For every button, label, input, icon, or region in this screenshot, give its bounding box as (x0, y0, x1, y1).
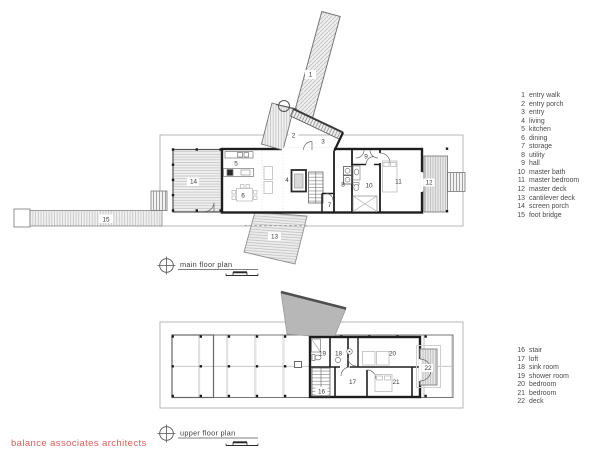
legend-item: 12master deck (512, 186, 579, 195)
legend-item: 19shower room (512, 373, 569, 382)
legend-item-number: 8 (512, 152, 525, 161)
legend-item-label: master bedroom (529, 177, 579, 186)
legend-main: 1entry walk 2entry porch 3entry 4living … (512, 92, 579, 220)
firm-name: balance associates architects (11, 438, 147, 449)
scale-bar (226, 442, 258, 445)
north-arrow-icon (158, 257, 176, 275)
legend-item-label: dining (529, 135, 547, 144)
legend-item-label: sink room (529, 364, 559, 373)
room-label-8: 8 (341, 182, 345, 189)
room-label-18: 18 (335, 350, 343, 357)
fireplace (292, 170, 307, 192)
legend-item-number: 21 (512, 390, 525, 399)
room-label-5: 5 (234, 161, 238, 168)
legend-item-label: master deck (529, 186, 567, 195)
legend-item: 4living (512, 118, 579, 127)
room-label-9: 9 (364, 154, 368, 161)
legend-item-number: 14 (512, 203, 525, 212)
stove (227, 170, 233, 176)
legend-item-label: cantilever deck (529, 195, 575, 204)
room-label-21: 21 (392, 379, 400, 386)
legend-item-label: storage (529, 143, 552, 152)
legend-item: 6dining (512, 135, 579, 144)
room-label-6: 6 (241, 193, 245, 200)
floor-plan-drawing: 1 2 3 4 5 6 7 8 9 10 11 12 13 14 15 main… (0, 0, 600, 464)
room-label-12: 12 (425, 180, 433, 187)
entry-roof-panel (281, 292, 346, 338)
room-label-16: 16 (318, 389, 326, 396)
legend-item-label: bedroom (529, 381, 556, 390)
entry-opening (282, 148, 334, 151)
room-label-13: 13 (271, 234, 279, 241)
legend-item-label: hall (529, 160, 540, 169)
room-label-3: 3 (321, 139, 325, 146)
legend-item-number: 11 (512, 177, 525, 186)
legend-item-label: loft (529, 356, 538, 365)
legend-item-number: 16 (512, 347, 525, 356)
legend-item-number: 17 (512, 356, 525, 365)
north-arrow-icon (158, 425, 176, 443)
legend-item-label: entry porch (529, 101, 563, 110)
main-plan-title-block: main floor plan (158, 257, 259, 276)
room-label-7: 7 (328, 202, 332, 209)
legend-item-number: 19 (512, 373, 525, 382)
upper-plan-title-block: upper floor plan (158, 425, 259, 446)
sink (335, 357, 340, 362)
legend-item-number: 3 (512, 109, 525, 118)
legend-item: 5kitchen (512, 126, 579, 135)
room-label-20: 20 (389, 350, 397, 357)
floor-plan-sheet: 1 2 3 4 5 6 7 8 9 10 11 12 13 14 15 main… (0, 0, 600, 464)
legend-item-label: bedroom (529, 390, 556, 399)
legend-item-number: 10 (512, 169, 525, 178)
scale-bar (226, 272, 258, 275)
foot-bridge (14, 209, 162, 227)
legend-item: 15foot bridge (512, 212, 579, 221)
legend-item: 17loft (512, 356, 569, 365)
legend-item-label: deck (529, 398, 544, 407)
legend-item: 22deck (512, 398, 569, 407)
room-label-17: 17 (349, 379, 357, 386)
legend-item-number: 12 (512, 186, 525, 195)
legend-item-number: 2 (512, 101, 525, 110)
legend-item: 18sink room (512, 364, 569, 373)
legend-item-number: 5 (512, 126, 525, 135)
legend-item-label: utility (529, 152, 545, 161)
legend-item-number: 22 (512, 398, 525, 407)
legend-item-label: shower room (529, 373, 569, 382)
room-label-22: 22 (424, 365, 432, 372)
main-floor-plan: 1 2 3 4 5 6 7 8 9 10 11 12 13 14 15 main… (14, 12, 465, 276)
room-label-19: 19 (319, 350, 327, 357)
legend-item: 8utility (512, 152, 579, 161)
room-label-11: 11 (395, 179, 402, 186)
legend-item-label: entry walk (529, 92, 560, 101)
legend-item: 7storage (512, 143, 579, 152)
legend-item-label: screen porch (529, 203, 569, 212)
legend-item-number: 15 (512, 212, 525, 221)
legend-item: 21bedroom (512, 390, 569, 399)
legend-item-number: 6 (512, 135, 525, 144)
main-stair (309, 172, 324, 203)
legend-item: 10master bath (512, 169, 579, 178)
main-plan-title: main floor plan (180, 260, 232, 269)
legend-item: 11master bedroom (512, 177, 579, 186)
legend-upper: 16stair 17loft 18sink room 19shower room… (512, 347, 569, 407)
legend-item-label: entry (529, 109, 544, 118)
legend-item: 20bedroom (512, 381, 569, 390)
legend-item-label: master bath (529, 169, 565, 178)
chimney (295, 362, 302, 368)
legend-item: 16stair (512, 347, 569, 356)
entry-walk (294, 12, 340, 120)
legend-item-number: 18 (512, 364, 525, 373)
upper-plan-title: upper floor plan (180, 429, 236, 438)
legend-item-label: living (529, 118, 545, 127)
legend-item: 1entry walk (512, 92, 579, 101)
legend-item-number: 4 (512, 118, 525, 127)
room-label-1: 1 (309, 72, 313, 79)
legend-item-label: stair (529, 347, 542, 356)
room-label-15: 15 (102, 217, 110, 224)
legend-item-label: kitchen (529, 126, 551, 135)
entry-porch (262, 103, 294, 150)
legend-item: 2entry porch (512, 101, 579, 110)
legend-item: 9hall (512, 160, 579, 169)
legend-item-number: 20 (512, 381, 525, 390)
toilet (312, 355, 315, 361)
legend-item-number: 13 (512, 195, 525, 204)
legend-item: 14screen porch (512, 203, 579, 212)
room-label-10: 10 (365, 183, 373, 190)
room-label-14: 14 (190, 179, 198, 186)
bridge-stair (151, 191, 167, 211)
legend-item-label: foot bridge (529, 212, 562, 221)
room-label-2: 2 (292, 133, 296, 140)
deck-stair (448, 173, 466, 192)
legend-item-number: 9 (512, 160, 525, 169)
legend-item: 3entry (512, 109, 579, 118)
legend-item: 13cantilever deck (512, 195, 579, 204)
legend-item-number: 1 (512, 92, 525, 101)
legend-item-number: 7 (512, 143, 525, 152)
room-label-4: 4 (285, 177, 289, 184)
upper-floor-plan: 16 17 18 19 20 21 22 upper floor plan (158, 292, 464, 446)
